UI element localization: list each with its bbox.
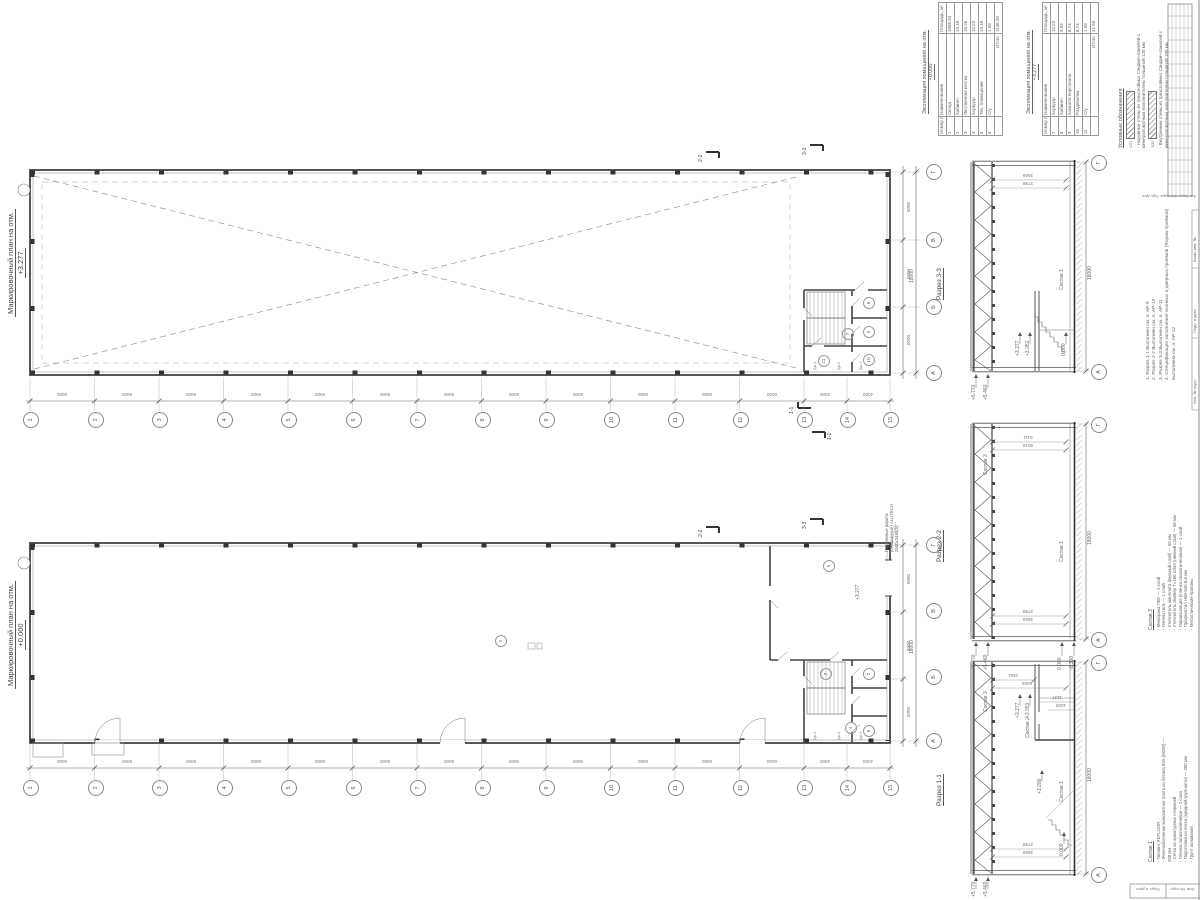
room-tag: 5 [823, 560, 835, 572]
door-tag: Дв-3 [858, 732, 863, 740]
grid-bubble: В [926, 603, 942, 619]
room-tag: 8 [863, 297, 875, 309]
plan-1-total-width-dim: 18000 [910, 269, 916, 283]
side-label: Взам. инв. № [1193, 237, 1197, 262]
plan-2-elevation: +0.000 [16, 620, 26, 649]
dimension-value: 6111 [1015, 435, 1041, 440]
dimension-value: 6000 [434, 392, 464, 397]
grid-bubble: 2 [88, 412, 104, 428]
revision-table-header: Изм. Кол.уч. Лист №док. Подп. Дата [1162, 194, 1196, 198]
dimension-value: 4000 [853, 392, 883, 397]
dimension-value: 1137 [1044, 695, 1070, 700]
comp-1-label: Состав 1 [1060, 781, 1066, 802]
grid-bubble: А [926, 733, 942, 749]
dimension-value: 6000 [499, 759, 529, 764]
grid-bubble: 15 [883, 780, 899, 796]
dimension-value: 6000 [757, 392, 787, 397]
room-tag: 3 [820, 668, 832, 680]
room-tag: 10 [863, 354, 875, 366]
grid-bubble: 14 [840, 412, 856, 428]
dimension-value: 6000 [563, 392, 593, 397]
grid-bubble: 4 [217, 412, 233, 428]
floor-composition: Состав 1 - Топпинг REFLOOR- Железобетонн… [1148, 730, 1195, 862]
plan-2-total-width-dim: 18000 [910, 640, 916, 654]
comp-2-label: Состав 2 [1026, 717, 1032, 738]
grid-bubble: 13 [797, 412, 813, 428]
dimension-value: 6000 [692, 759, 722, 764]
section-mark-3-3: 3-3 [803, 148, 809, 155]
dimension-value: 6000 [499, 392, 529, 397]
grid-bubble: 2 [88, 780, 104, 796]
grid-bubble: 1 [23, 412, 39, 428]
side-label: Подп. и дата [1193, 309, 1197, 333]
grid-bubble: Б [926, 669, 942, 685]
gate-leader-note: Подъемные ворота (секционные) ALUTECH 25… [884, 488, 899, 552]
door-tag: Дв-5 [836, 362, 841, 370]
room-tag: 9 [863, 326, 875, 338]
dimension-value: 6000 [305, 392, 335, 397]
col-room-number: Номер помещ. [939, 117, 947, 136]
grid-bubble: 14 [840, 780, 856, 796]
table-row: 2Кабинет13.49 [955, 3, 963, 136]
table-row: 10Раздевалка8.74 [1075, 3, 1083, 136]
total-area: 1146.28 [995, 3, 1003, 34]
layer-line: - Железобетонная монолитная плита из бет… [1161, 730, 1172, 862]
legend: Условные обозначения 120 - Наружные стен… [1118, 8, 1169, 148]
grid-bubble: 7 [410, 780, 426, 796]
elevation-label: +3.051 [1026, 341, 1032, 356]
dimension-value: 6000 [628, 759, 658, 764]
dimension-value: 6000 [692, 392, 722, 397]
grid-bubble: 5 [281, 780, 297, 796]
grid-bubble: Г [1091, 417, 1107, 433]
grid-bubble: А [1091, 632, 1107, 648]
grid-bubble: 11 [668, 412, 684, 428]
elevation-label: +3.277 [1016, 341, 1022, 356]
room-tag: 6 [863, 725, 875, 737]
comp-1-label: Состав 1 [1060, 269, 1066, 290]
door-tag: Дв-2 [836, 732, 841, 740]
elevation-label: +5.460 [984, 385, 990, 400]
legend-item: 100 - Внутренние стены из трехслойных Сэ… [1148, 8, 1168, 148]
room-tag: 7 [842, 328, 854, 340]
col-room-area: Площадь, м² [939, 3, 947, 34]
grid-bubble: А [1091, 364, 1107, 380]
schedule-table-1: Номер помещ. Наименование Площадь, м² 1С… [938, 2, 1003, 136]
dimension-value: 6655 [1014, 681, 1040, 686]
grid-bubble: Г [1091, 655, 1107, 671]
elevation-label: +5.770 [972, 385, 978, 400]
section-3-3-title: Разрез 3-3 [936, 268, 944, 300]
grid-bubble: 11 [668, 780, 684, 796]
dimension-value: 6000 [112, 759, 142, 764]
dimension-value: 6000 [906, 202, 911, 212]
table-row: 1Склад1088.94 [947, 3, 955, 136]
grid-bubble: 10 [604, 412, 620, 428]
grid-bubble: 9 [539, 780, 555, 796]
layer-line: - Грунт основания [1189, 730, 1195, 862]
grid-bubble: 15 [883, 412, 899, 428]
grid-bubble: А [1091, 867, 1107, 883]
dimension-value: 4000 [810, 392, 840, 397]
section-mark-2-2: 2-2 [699, 530, 705, 537]
grid-bubble: 9 [539, 412, 555, 428]
section-total-dim: 18000 [1088, 531, 1094, 545]
roof-composition: Состав 3 - Мембрана ПВХ — 1 слой- Геотек… [1148, 498, 1195, 630]
drawing-linework [0, 0, 1200, 900]
table-row: 4Коридор12.52 [971, 3, 979, 136]
grid-bubble: 8 [475, 412, 491, 428]
dimension-value: 6000 [241, 392, 271, 397]
door-tag: Дв-1 [812, 732, 817, 740]
grid-bubble: 13 [797, 780, 813, 796]
section-2-2-title: Разрез 2-2 [936, 530, 944, 562]
dimension-value: 2798 [1015, 181, 1041, 186]
side-label: Инв. № подл. [1193, 379, 1197, 404]
room-tag: 1 [495, 635, 507, 647]
table-row: 8Кабинет9.92 [1059, 3, 1067, 136]
dimension-value: 6000 [563, 759, 593, 764]
drawing-sheet: Маркировочный план на отм. +3.277 Маркир… [0, 0, 1200, 900]
grid-bubble: 6 [346, 412, 362, 428]
section-mark-1-1: 1-1 [828, 433, 834, 440]
dimension-value: 6000 [906, 707, 911, 717]
grid-bubble: 12 [733, 412, 749, 428]
wall-hatch-swatch [1126, 91, 1135, 139]
legend-title: Условные обозначения [1118, 8, 1124, 148]
dimension-value: 6000 [176, 392, 206, 397]
elevation-label: +3.277 [1016, 703, 1022, 718]
legend-item: 120 - Наружные стены из трехслойных Сэнд… [1126, 8, 1146, 148]
grid-bubble: 7 [410, 412, 426, 428]
dimension-value: 4000 [853, 759, 883, 764]
table-row: 6С/у1.58 [987, 3, 995, 136]
layer-line: - Металлические прогоны [1189, 498, 1195, 630]
dimension-value: 6000 [305, 759, 335, 764]
grid-bubble: 10 [604, 780, 620, 796]
elevation-label: +5.770 [972, 882, 978, 897]
general-notes: 1. Разрез 1-1 Выполнен см. л. АР-92. Раз… [1146, 190, 1178, 380]
dimension-value: 6000 [241, 759, 271, 764]
dimension-value: 1508 [1048, 703, 1074, 708]
dimension-value: 6000 [906, 574, 911, 584]
total-area: 41.50 [1091, 3, 1099, 34]
section-mark-2-2: 2-2 [699, 155, 705, 162]
bottom-strip-cell: Инв. № подл. [1167, 887, 1197, 892]
grid-bubble: А [926, 365, 942, 381]
elevation-label: +1.200 [1038, 779, 1044, 794]
section-total-dim: 18000 [1088, 768, 1094, 782]
table-row: 9Комната персонала8.74 [1067, 3, 1075, 136]
grid-bubble: 5 [281, 412, 297, 428]
grid-bubble: 4 [217, 780, 233, 796]
table-row: 3Лестничная клетка16.26 [963, 3, 971, 136]
grid-bubble: Б [926, 299, 942, 315]
elevation-label: +5.460 [984, 655, 990, 670]
dimension-value: 6000 [47, 392, 77, 397]
plan-2-title: Маркировочный план на отм. +0.000 [6, 520, 26, 750]
plan-1-title: Маркировочный план на отм. +3.277 [6, 148, 26, 378]
dimension-value: 6000 [757, 759, 787, 764]
dimension-value: 6000 [628, 392, 658, 397]
section-total-dim: 18000 [1088, 266, 1094, 280]
dimension-value: 6000 [47, 759, 77, 764]
plan-1-elevation: +3.277 [16, 248, 26, 277]
elevation-label: +5.770 [972, 655, 978, 670]
grid-bubble: Г [1091, 155, 1107, 171]
grid-bubble: В [926, 232, 942, 248]
elevation-label: 0.000 [1062, 343, 1068, 356]
grid-bubble: Г [926, 164, 942, 180]
layer-line: - Утеплитель ЭкоВер Т=100 кг/м3 (нижний … [1172, 498, 1178, 630]
door-tag: Дв-1 [858, 362, 863, 370]
dimension-value: 6000 [906, 335, 911, 345]
schedule-2-title: Экспликация помещений на отм.+3.277 [1026, 8, 1038, 136]
dimension-value: 3569 [1015, 850, 1041, 855]
room-tag: 2 [863, 668, 875, 680]
grid-bubble: 6 [346, 780, 362, 796]
table-row: 5Тех. помещение13.49 [979, 3, 987, 136]
dimension-value: 3569 [1015, 173, 1041, 178]
dimension-value: 2798 [1015, 842, 1041, 847]
grid-bubble: 3 [152, 412, 168, 428]
col-room-name: Наименование [939, 34, 947, 117]
room-tag: 4 [845, 722, 857, 734]
schedule-1-title: Экспликация помещений на отм.+0.000 [922, 8, 934, 136]
dimension-value: 2798 [1015, 609, 1041, 614]
table-row: 7Коридор12.52 [1051, 3, 1059, 136]
grid-bubble: 8 [475, 780, 491, 796]
section-mark-3-3: 3-3 [803, 522, 809, 529]
door-tag: Дв-4 [812, 362, 817, 370]
wall-hatch-swatch [1148, 91, 1157, 139]
plan-2-dimensions [30, 545, 920, 780]
elevation-label: +5.460 [984, 882, 990, 897]
elevation-label: -0.300 [1070, 656, 1076, 670]
grid-bubble: 3 [152, 780, 168, 796]
comp-1-label: Состав 1 [1060, 541, 1066, 562]
grid-bubble: 1 [23, 780, 39, 796]
dimension-value: 2561 [1000, 673, 1026, 678]
table-row: 11С/у1.58 [1083, 3, 1091, 136]
dimension-value: 6000 [434, 759, 464, 764]
dimension-value: 6000 [370, 759, 400, 764]
dimension-value: 6000 [112, 392, 142, 397]
room-tag: 11 [818, 355, 830, 367]
elevation-label: +3.051 [1026, 703, 1032, 718]
elevation-label: 0.000 [1058, 657, 1064, 670]
dimension-value: 9018 [1015, 443, 1041, 448]
note-line: 4. Спецификация заполнения оконных и две… [1165, 190, 1178, 380]
schedule-table-2: Номер помещ. Наименование Площадь, м² 7К… [1042, 2, 1099, 136]
bottom-strip-cell: Подп. и дата [1132, 887, 1164, 892]
dimension-value: 4000 [810, 759, 840, 764]
plan-2-linework [18, 519, 896, 757]
comp-3-label: Состав 3 [984, 691, 990, 712]
section-mark-1-1: 1-1 [790, 407, 796, 414]
dimension-value: 3569 [1015, 617, 1041, 622]
dimension-value: 6000 [370, 392, 400, 397]
dimension-value: 6000 [176, 759, 206, 764]
grid-bubble: 12 [733, 780, 749, 796]
comp-3-label: Состав 3 [984, 454, 990, 475]
section-1-1-title: Разрез 1-1 [936, 774, 944, 806]
elevation-tag: +3.277 [856, 585, 862, 600]
elevation-label: 0.000 [1060, 843, 1066, 856]
